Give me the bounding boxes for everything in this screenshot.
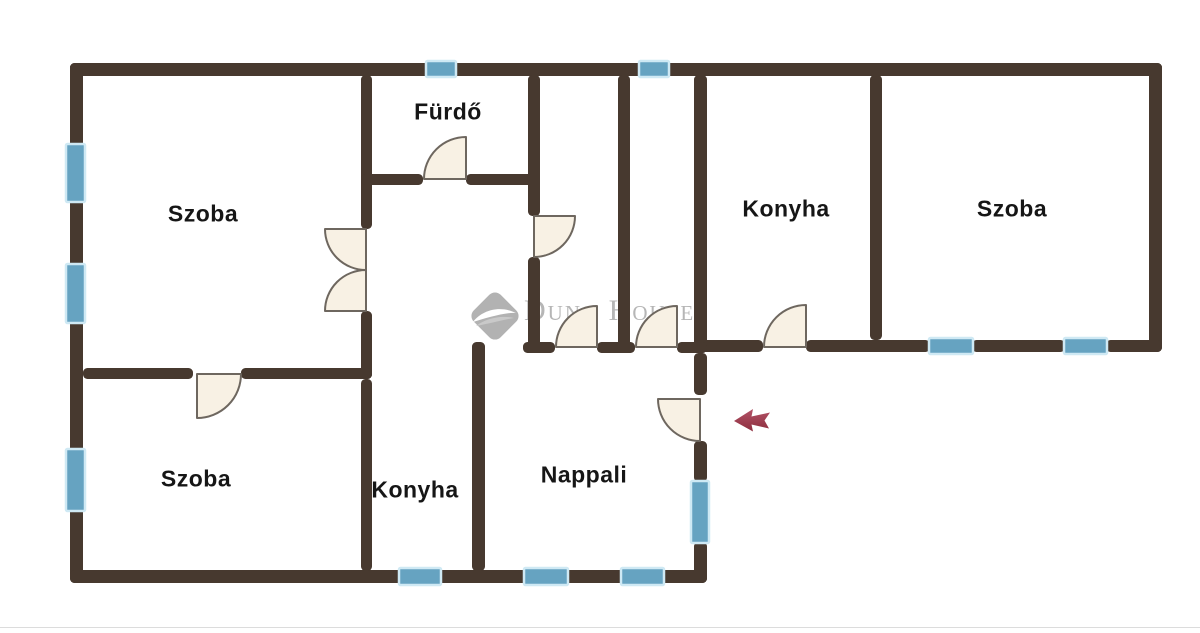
wall-segment: [361, 174, 423, 185]
wall-segment: [472, 342, 485, 571]
floorplan-canvas: Duna House® SzobaFürdőKonyhaSzobaSzobaKo…: [0, 0, 1200, 633]
door-swing-hall-side-door: [534, 216, 575, 257]
window: [621, 568, 664, 585]
room-label-konyha-bottom: Konyha: [371, 477, 458, 504]
room-label-konyha-top: Konyha: [742, 196, 829, 223]
window: [1064, 338, 1107, 354]
window: [66, 144, 85, 202]
wall-segment: [972, 340, 1065, 352]
wall-segment: [1149, 63, 1162, 352]
floorplan-svg: [0, 0, 1200, 633]
wall-segment: [677, 342, 707, 353]
room-label-nappali: Nappali: [541, 462, 628, 489]
wall-segment: [528, 257, 540, 353]
wall-segment: [83, 368, 193, 379]
room-label-szoba-right: Szoba: [977, 196, 1047, 223]
door-swing-konyha-top-door: [764, 305, 806, 347]
wall-segment: [694, 441, 707, 482]
wall-segment: [694, 353, 707, 395]
door-swing-double-door-top-leaf: [325, 229, 366, 270]
window: [399, 568, 441, 585]
window: [929, 338, 973, 354]
window: [691, 481, 709, 543]
wall-segment: [70, 63, 1162, 76]
wall-segment: [523, 342, 555, 353]
wall-segment: [1106, 340, 1162, 352]
wall-segment: [694, 75, 707, 353]
room-label-szoba-top-left: Szoba: [168, 201, 238, 228]
window: [524, 568, 568, 585]
window: [66, 264, 85, 323]
door-swing-szoba-bl-door: [197, 374, 241, 418]
window: [426, 61, 456, 77]
entrance-arrow-icon: [734, 409, 770, 432]
window: [639, 61, 669, 77]
wall-segment: [70, 570, 707, 583]
door-swing-double-door-bottom-leaf: [325, 270, 366, 311]
door-swing-entrance-door: [658, 399, 700, 441]
wall-segment: [870, 75, 882, 340]
door-swing-furdo-door: [424, 137, 466, 179]
wall-segment: [361, 75, 372, 229]
wall-segment: [806, 340, 930, 352]
wall-segment: [597, 342, 635, 353]
wall-segment: [528, 75, 540, 216]
door-swing-hall-a-door: [556, 306, 597, 347]
door-swing-hall-b-door: [636, 306, 677, 347]
room-label-furdo: Fürdő: [414, 99, 482, 126]
wall-segment: [694, 542, 707, 583]
wall-segment: [618, 75, 630, 353]
window: [66, 449, 85, 511]
room-label-szoba-bottom-left: Szoba: [161, 466, 231, 493]
wall-segment: [241, 368, 372, 379]
wall-segment: [361, 379, 372, 571]
